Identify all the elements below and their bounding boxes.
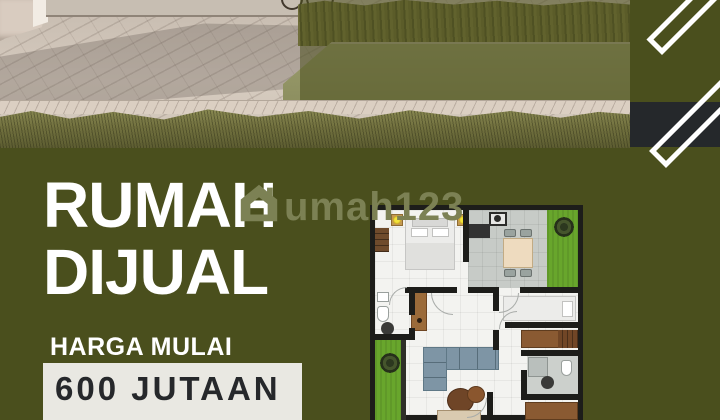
headline-line2: DIJUAL <box>43 239 276 306</box>
floor-plan <box>370 205 583 420</box>
sidewalk-path <box>0 100 630 114</box>
office-chair <box>541 376 554 389</box>
shower <box>528 357 548 377</box>
wall-segment <box>375 334 415 340</box>
wall-segment <box>487 392 493 420</box>
sofa <box>423 347 447 391</box>
plant-icon <box>377 350 403 376</box>
door-arc <box>499 311 517 329</box>
watermark-text: umah123 <box>284 184 464 230</box>
dresser <box>375 228 389 252</box>
plant-icon <box>551 214 577 240</box>
shelf <box>558 330 578 348</box>
price-value: 600 JUTAAN <box>55 370 281 407</box>
toilet <box>377 306 389 322</box>
blanket <box>406 243 454 269</box>
kitchen-counter <box>468 224 490 238</box>
sink <box>377 292 389 302</box>
photo-olive-overlay <box>300 0 630 100</box>
house-icon <box>236 180 282 226</box>
price-box: 600 JUTAAN <box>43 363 302 420</box>
wall-segment <box>493 330 499 350</box>
diagonal-stripe <box>646 0 720 55</box>
dining-chair <box>520 269 532 277</box>
door-arc <box>467 398 487 418</box>
wall-segment <box>521 350 578 356</box>
wardrobe-knob <box>417 318 422 323</box>
pillow <box>562 301 573 317</box>
flyer-canvas: umah123 RUMAH DIJUAL HARGA MULAI 600 JUT… <box>0 0 720 420</box>
desk <box>525 402 578 420</box>
dining-chair <box>504 269 516 277</box>
stove-burner <box>494 215 501 222</box>
dining-chair <box>504 229 516 237</box>
price-label: HARGA MULAI <box>50 333 232 362</box>
wall-segment <box>521 394 578 400</box>
door-arc <box>389 287 407 305</box>
photo-house-exterior <box>0 0 630 148</box>
wall-segment <box>409 287 415 315</box>
curb-step <box>46 0 316 17</box>
watermark-rumah123: umah123 <box>236 180 464 230</box>
wall-segment <box>520 287 578 293</box>
toilet <box>561 360 572 376</box>
dining-chair <box>520 229 532 237</box>
door-arc <box>431 293 453 315</box>
dining-table <box>503 238 533 268</box>
